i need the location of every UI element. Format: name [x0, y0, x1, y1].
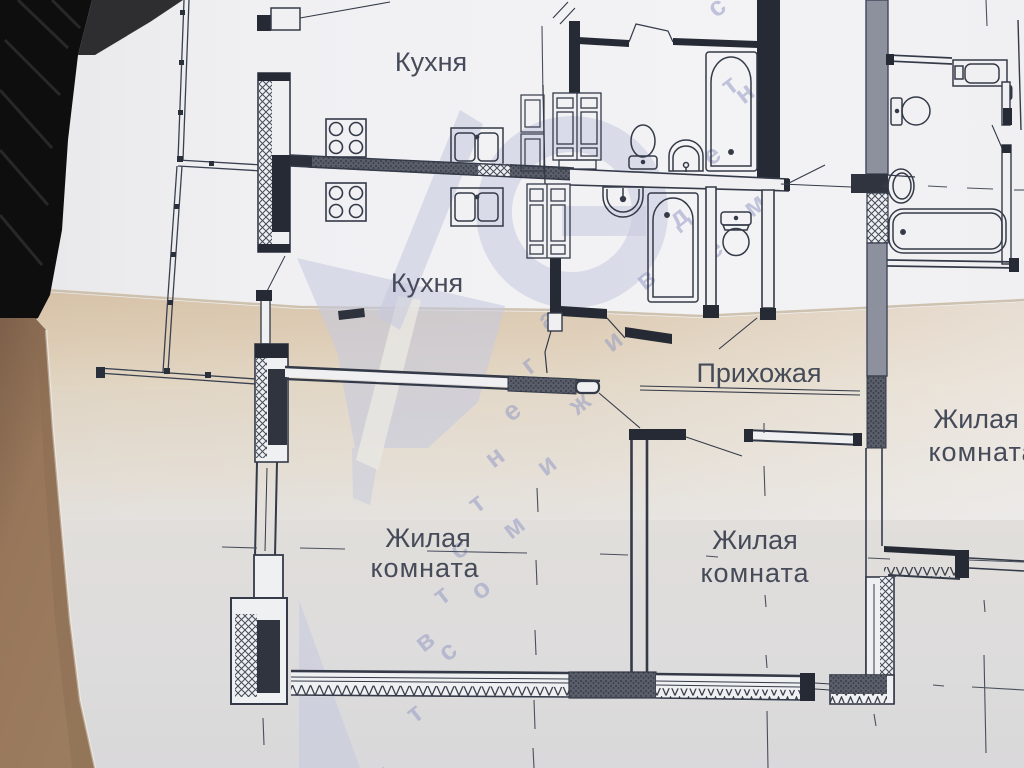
svg-text:комната: комната — [928, 437, 1024, 467]
svg-text:комната: комната — [700, 558, 809, 588]
svg-text:Жилая: Жилая — [712, 525, 797, 555]
svg-text:Жилая: Жилая — [933, 404, 1018, 434]
svg-text:Прихожая: Прихожая — [696, 358, 821, 388]
svg-text:Жилая: Жилая — [385, 523, 470, 553]
svg-text:Кухня: Кухня — [391, 268, 463, 298]
svg-text:комната: комната — [370, 553, 479, 583]
svg-text:Кухня: Кухня — [395, 47, 467, 77]
